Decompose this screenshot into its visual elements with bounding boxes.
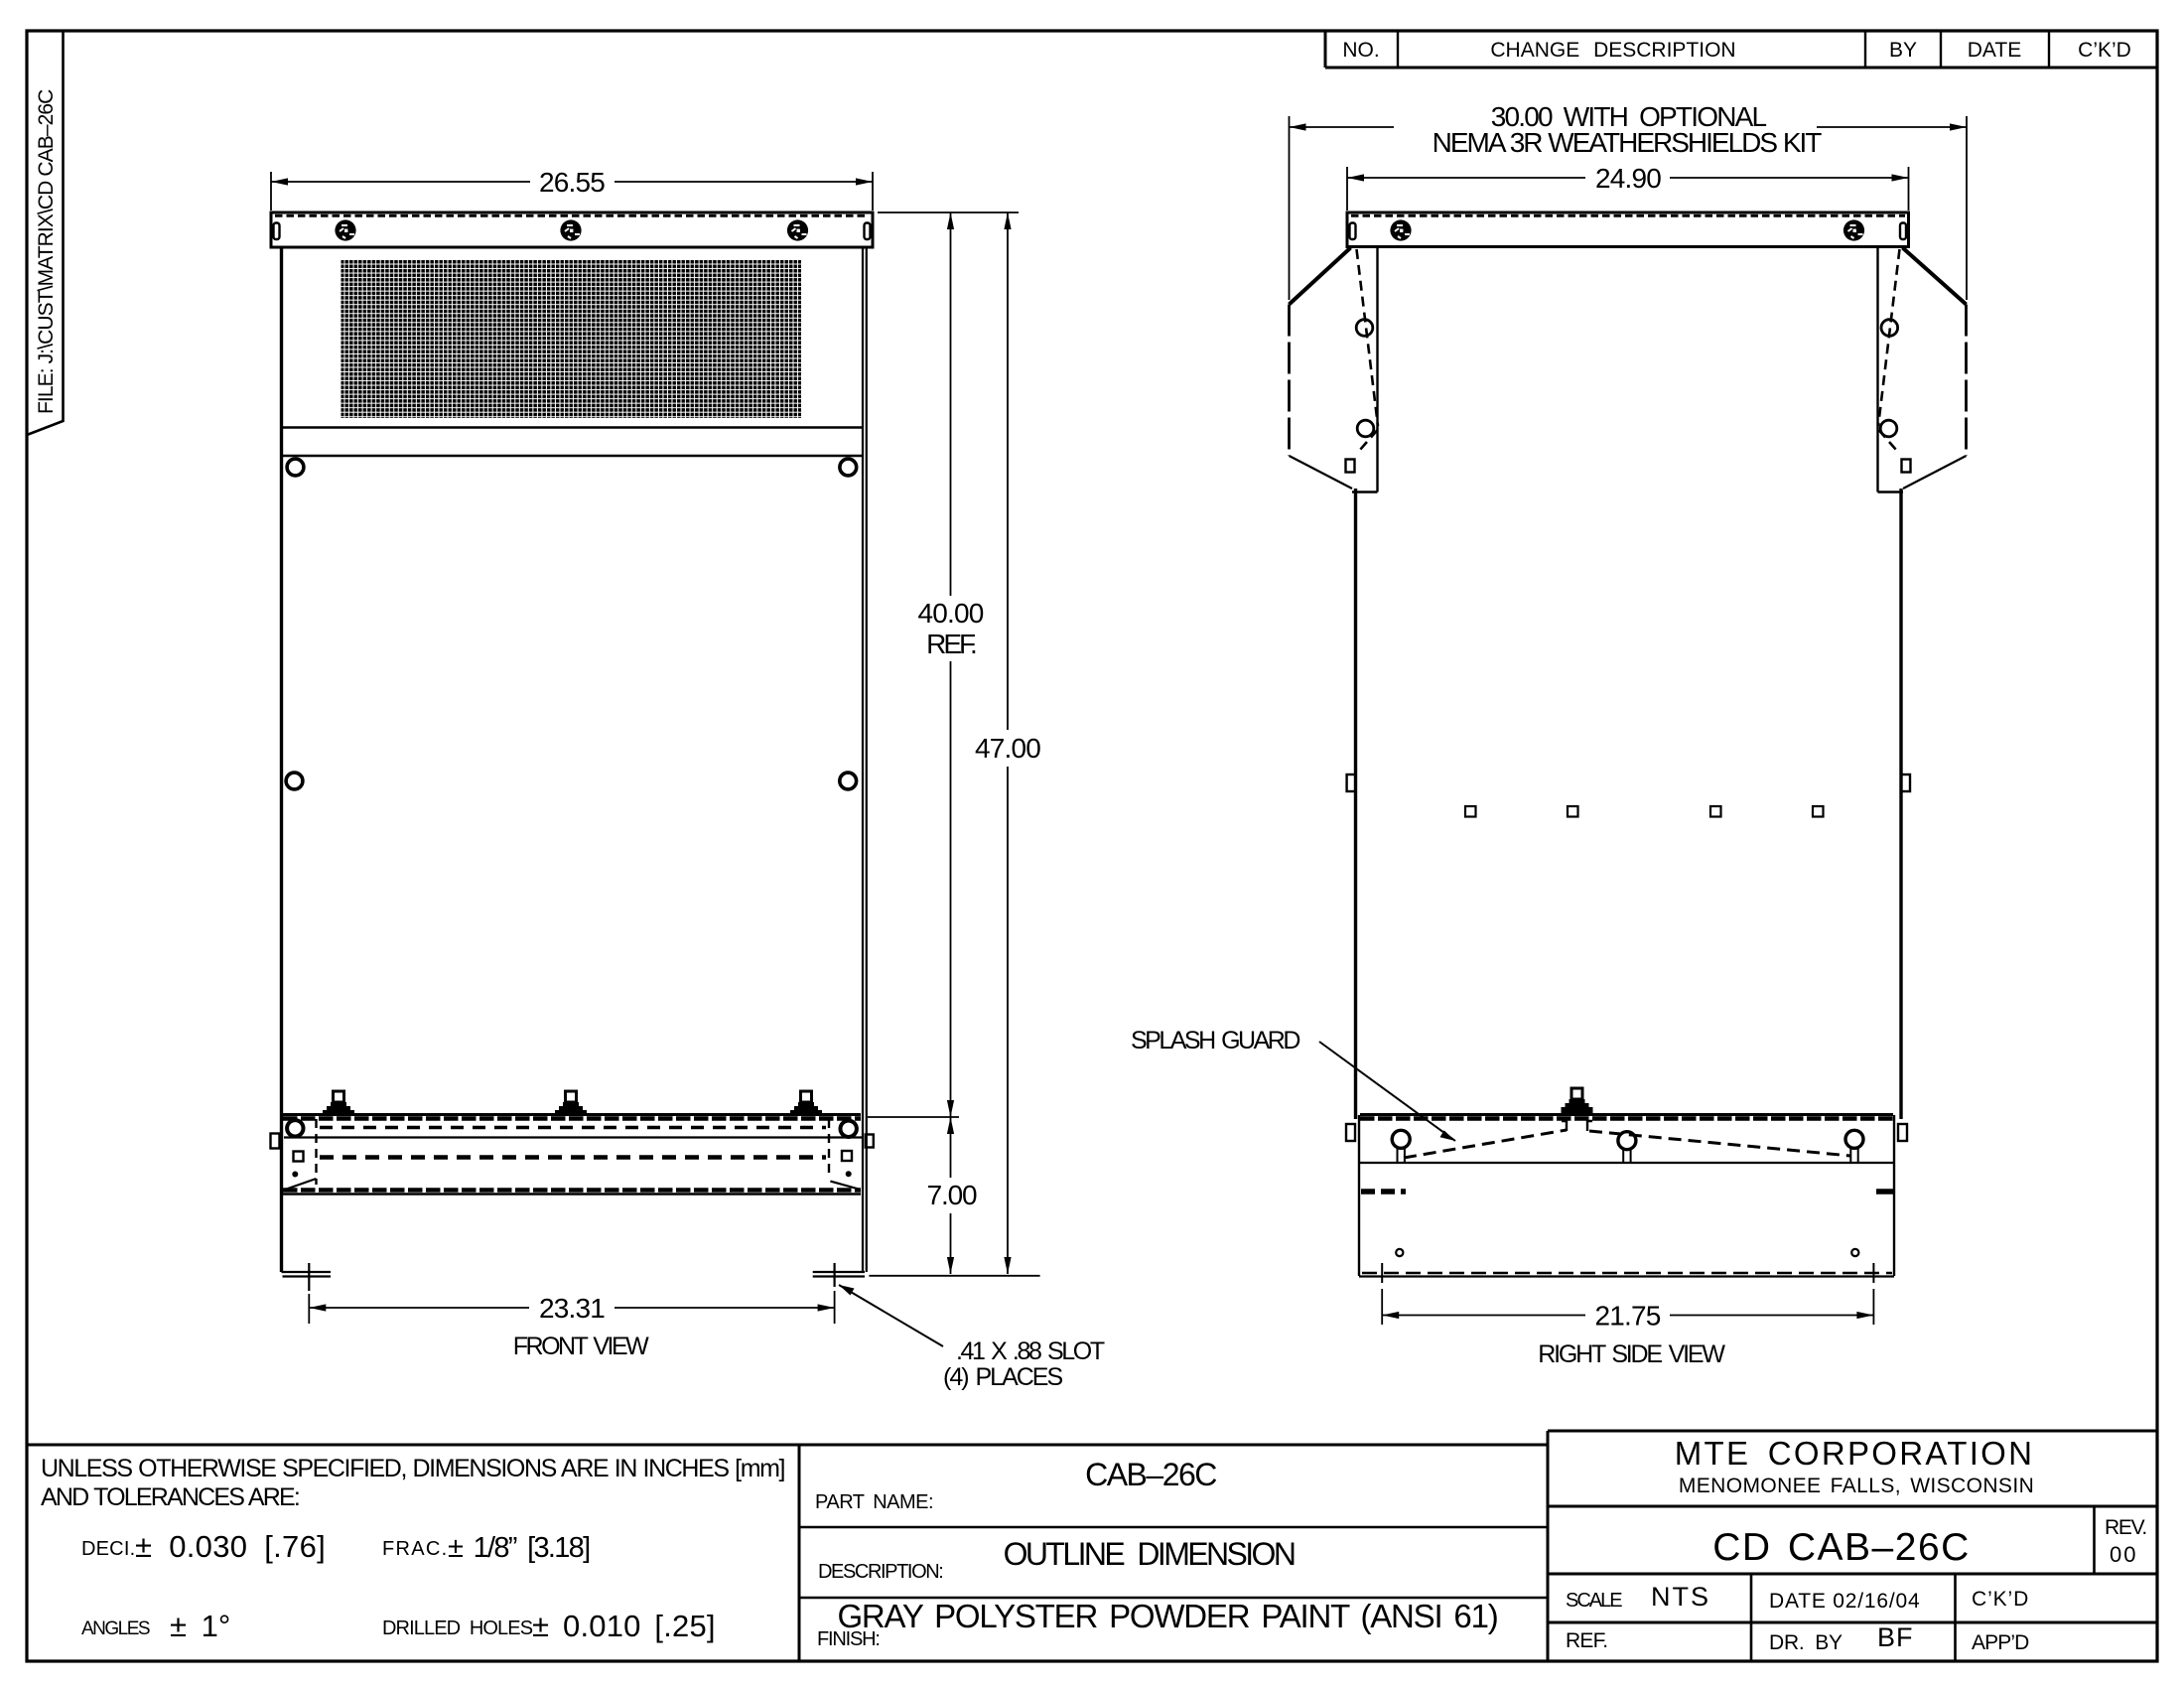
svg-text:GRAY POLYSTER POWDER PAINT (AN: GRAY POLYSTER POWDER PAINT (ANSI 61) — [837, 1598, 1497, 1634]
svg-text:40.00: 40.00 — [917, 598, 983, 629]
svg-text:26.55: 26.55 — [539, 167, 605, 198]
svg-text:.41 X .88 SLOT: .41 X .88 SLOT — [956, 1337, 1105, 1365]
svg-text:BF: BF — [1877, 1622, 1914, 1652]
svg-text:00: 00 — [2110, 1542, 2137, 1567]
svg-text:CAB–26C: CAB–26C — [1085, 1457, 1216, 1492]
svg-text:FILE: J:\CUST\MATRIX\CD CAB–2: FILE: J:\CUST\MATRIX\CD CAB–26C — [35, 89, 58, 414]
svg-text:AND TOLERANCES ARE:: AND TOLERANCES ARE: — [41, 1483, 299, 1511]
svg-text:21.75: 21.75 — [1594, 1301, 1660, 1332]
svg-text:24.90: 24.90 — [1595, 163, 1661, 194]
svg-text:DRILLED HOLES: DRILLED HOLES — [382, 1618, 533, 1639]
svg-text:MTE CORPORATION: MTE CORPORATION — [1675, 1435, 2035, 1472]
svg-text:± 1°: ± 1° — [170, 1609, 230, 1643]
svg-text:DESCRIPTION:: DESCRIPTION: — [818, 1561, 942, 1583]
svg-text:RIGHT SIDE VIEW: RIGHT SIDE VIEW — [1538, 1340, 1725, 1368]
svg-text:23.31: 23.31 — [539, 1293, 605, 1324]
svg-text:REF.: REF. — [1566, 1629, 1607, 1652]
svg-text:(4) PLACES: (4) PLACES — [943, 1363, 1062, 1391]
svg-text:REF.: REF. — [926, 629, 976, 659]
svg-text:DATE: DATE — [1968, 39, 2021, 62]
svg-text:APP’D: APP’D — [1972, 1631, 2029, 1654]
svg-text:OUTLINE DIMENSION: OUTLINE DIMENSION — [1004, 1536, 1295, 1572]
svg-text:PART NAME:: PART NAME: — [815, 1491, 933, 1513]
svg-text:C’K’D: C’K’D — [2078, 39, 2131, 62]
svg-text:± 1/8” [3.18]: ± 1/8” [3.18] — [448, 1532, 589, 1564]
svg-text:CD CAB–26C: CD CAB–26C — [1712, 1526, 1971, 1569]
svg-text:FRAC.: FRAC. — [382, 1538, 449, 1560]
svg-text:NO.: NO. — [1342, 39, 1379, 62]
svg-text:UNLESS OTHERWISE SPECIFIED, DI: UNLESS OTHERWISE SPECIFIED, DIMENSIONS A… — [41, 1455, 785, 1482]
svg-text:SCALE: SCALE — [1566, 1590, 1622, 1612]
svg-text:DATE 02/16/04: DATE 02/16/04 — [1769, 1590, 1920, 1613]
svg-text:± 0.030 [.76]: ± 0.030 [.76] — [135, 1529, 326, 1564]
svg-text:FRONT VIEW: FRONT VIEW — [513, 1333, 649, 1360]
svg-text:BY: BY — [1889, 39, 1917, 62]
svg-text:47.00: 47.00 — [975, 733, 1040, 764]
svg-text:NTS: NTS — [1651, 1582, 1710, 1612]
svg-text:SPLASH GUARD: SPLASH GUARD — [1131, 1027, 1299, 1055]
svg-text:CHANGE DESCRIPTION: CHANGE DESCRIPTION — [1490, 39, 1735, 62]
svg-text:MENOMONEE FALLS, WISCONSIN: MENOMONEE FALLS, WISCONSIN — [1679, 1475, 2034, 1497]
svg-text:C’K’D: C’K’D — [1972, 1588, 2029, 1611]
svg-text:NEMA 3R WEATHERSHIELDS KIT: NEMA 3R WEATHERSHIELDS KIT — [1433, 127, 1823, 158]
svg-text:REV.: REV. — [2105, 1516, 2146, 1539]
svg-text:± 0.010 [.25]: ± 0.010 [.25] — [532, 1609, 716, 1643]
svg-text:DR. BY: DR. BY — [1769, 1631, 1843, 1654]
svg-text:DECI.: DECI. — [81, 1538, 135, 1560]
svg-text:ANGLES: ANGLES — [81, 1618, 150, 1639]
svg-text:7.00: 7.00 — [927, 1180, 977, 1210]
